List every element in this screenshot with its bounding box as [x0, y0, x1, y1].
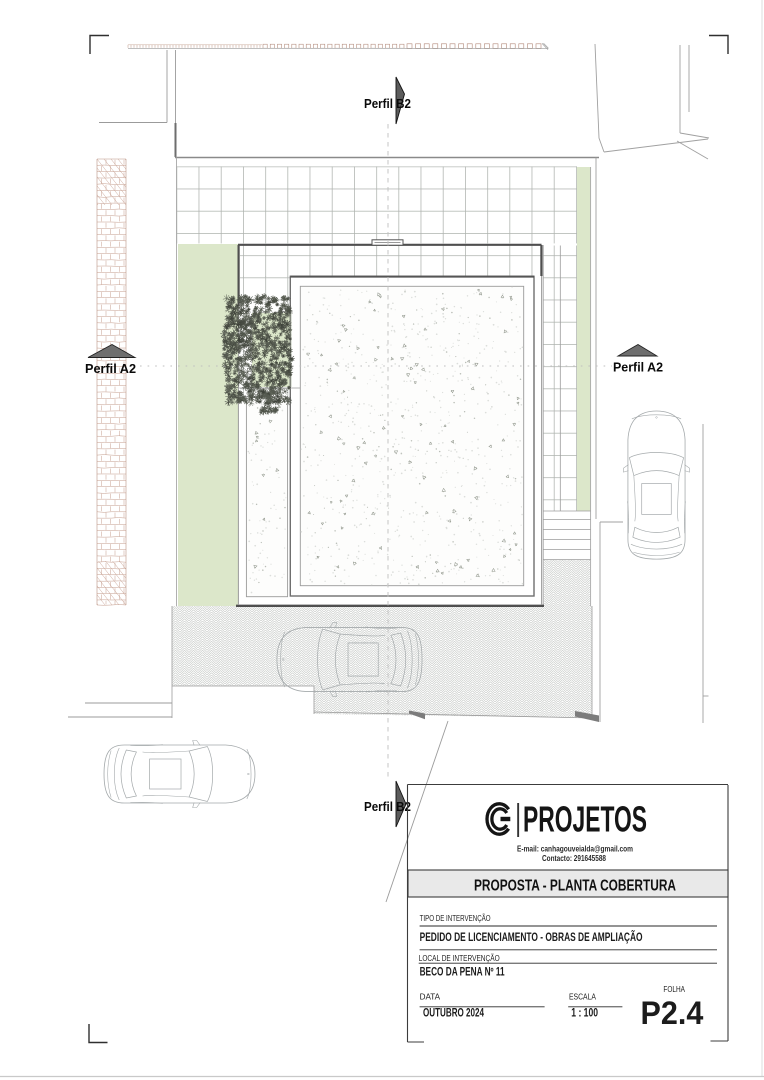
svg-text:P2.4: P2.4	[641, 995, 704, 1031]
svg-text:LOCAL DE INTERVENÇÃO: LOCAL DE INTERVENÇÃO	[419, 954, 500, 963]
svg-text:Perfil A2: Perfil A2	[85, 361, 136, 376]
svg-text:DATA: DATA	[420, 993, 441, 1002]
svg-text:Perfil A2: Perfil A2	[613, 360, 663, 375]
svg-text:PROJETOS: PROJETOS	[523, 799, 647, 840]
svg-text:FOLHA: FOLHA	[663, 984, 685, 994]
svg-text:E-mail: canhagouveialda@gmail.: E-mail: canhagouveialda@gmail.com	[517, 845, 633, 854]
svg-text:BECO DA PENA Nº 11: BECO DA PENA Nº 11	[420, 966, 505, 978]
svg-text:Perfil B2: Perfil B2	[364, 96, 411, 111]
svg-text:TIPO DE INTERVENÇÃO: TIPO DE INTERVENÇÃO	[420, 914, 491, 923]
svg-text:ESCALA: ESCALA	[569, 993, 597, 1002]
svg-text:Perfil B2: Perfil B2	[364, 799, 411, 814]
svg-text:PEDIDO DE LICENCIAMENTO - OBRA: PEDIDO DE LICENCIAMENTO - OBRAS DE AMPLI…	[420, 931, 643, 944]
svg-text:PROPOSTA - PLANTA COBERTURA: PROPOSTA - PLANTA COBERTURA	[474, 878, 676, 895]
svg-text:Contacto: 291645588: Contacto: 291645588	[542, 854, 606, 863]
svg-text:1 : 100: 1 : 100	[571, 1007, 598, 1019]
svg-text:OUTUBRO 2024: OUTUBRO 2024	[423, 1007, 484, 1019]
